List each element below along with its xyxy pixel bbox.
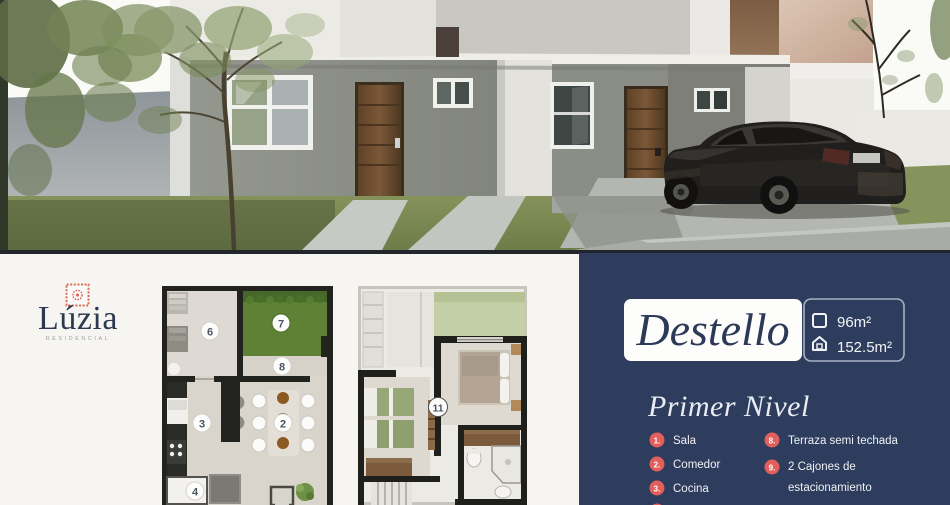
svg-text:3.: 3. xyxy=(654,485,661,494)
svg-text:6: 6 xyxy=(207,327,213,339)
svg-text:Destello: Destello xyxy=(635,304,789,355)
svg-text:1.: 1. xyxy=(654,437,661,446)
svg-text:4: 4 xyxy=(192,487,199,499)
svg-text:8: 8 xyxy=(279,362,285,374)
svg-text:Primer Nivel: Primer Nivel xyxy=(647,390,810,423)
svg-text:Comedor: Comedor xyxy=(673,459,720,471)
svg-text:96m²: 96m² xyxy=(837,314,871,331)
svg-text:Sala: Sala xyxy=(673,435,697,447)
svg-text:Terraza semi techada: Terraza semi techada xyxy=(788,435,899,447)
svg-text:7: 7 xyxy=(278,319,284,331)
svg-text:2: 2 xyxy=(280,419,286,431)
svg-text:152.5m²: 152.5m² xyxy=(837,339,892,356)
svg-text:3: 3 xyxy=(199,419,205,431)
svg-text:8.: 8. xyxy=(769,437,776,446)
svg-text:2 Cajones de: 2 Cajones de xyxy=(788,461,856,473)
svg-text:estacionamiento: estacionamiento xyxy=(788,482,872,494)
svg-text:11: 11 xyxy=(432,403,443,415)
svg-text:2.: 2. xyxy=(654,461,661,470)
svg-text:Lúzia: Lúzia xyxy=(38,300,118,337)
svg-text:RESIDENCIAL: RESIDENCIAL xyxy=(46,336,111,342)
svg-text:Cocina: Cocina xyxy=(673,483,709,495)
svg-text:9.: 9. xyxy=(769,464,776,473)
